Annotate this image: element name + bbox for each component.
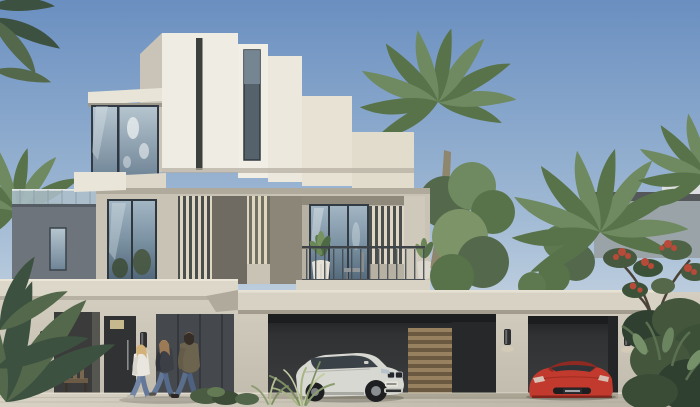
wood-slat-panel xyxy=(408,328,452,398)
villa-second-floor xyxy=(12,172,435,292)
carport-fascia xyxy=(238,290,662,310)
door-plaque xyxy=(110,320,124,329)
glass-balustrade xyxy=(12,190,96,204)
wing-window xyxy=(50,228,66,270)
cream-volume-5 xyxy=(352,132,414,188)
balcony xyxy=(296,196,435,292)
second-floor-window xyxy=(108,200,156,283)
balcony-railing xyxy=(302,246,425,281)
fascia-left xyxy=(0,279,238,296)
entry-door xyxy=(104,316,136,398)
architectural-render xyxy=(0,0,700,407)
villa-scene xyxy=(0,0,700,407)
tropical-bushes-right xyxy=(622,298,700,407)
louvre-screen-1 xyxy=(178,196,212,282)
white-volume-3 xyxy=(268,56,302,182)
slot-window xyxy=(196,38,203,170)
